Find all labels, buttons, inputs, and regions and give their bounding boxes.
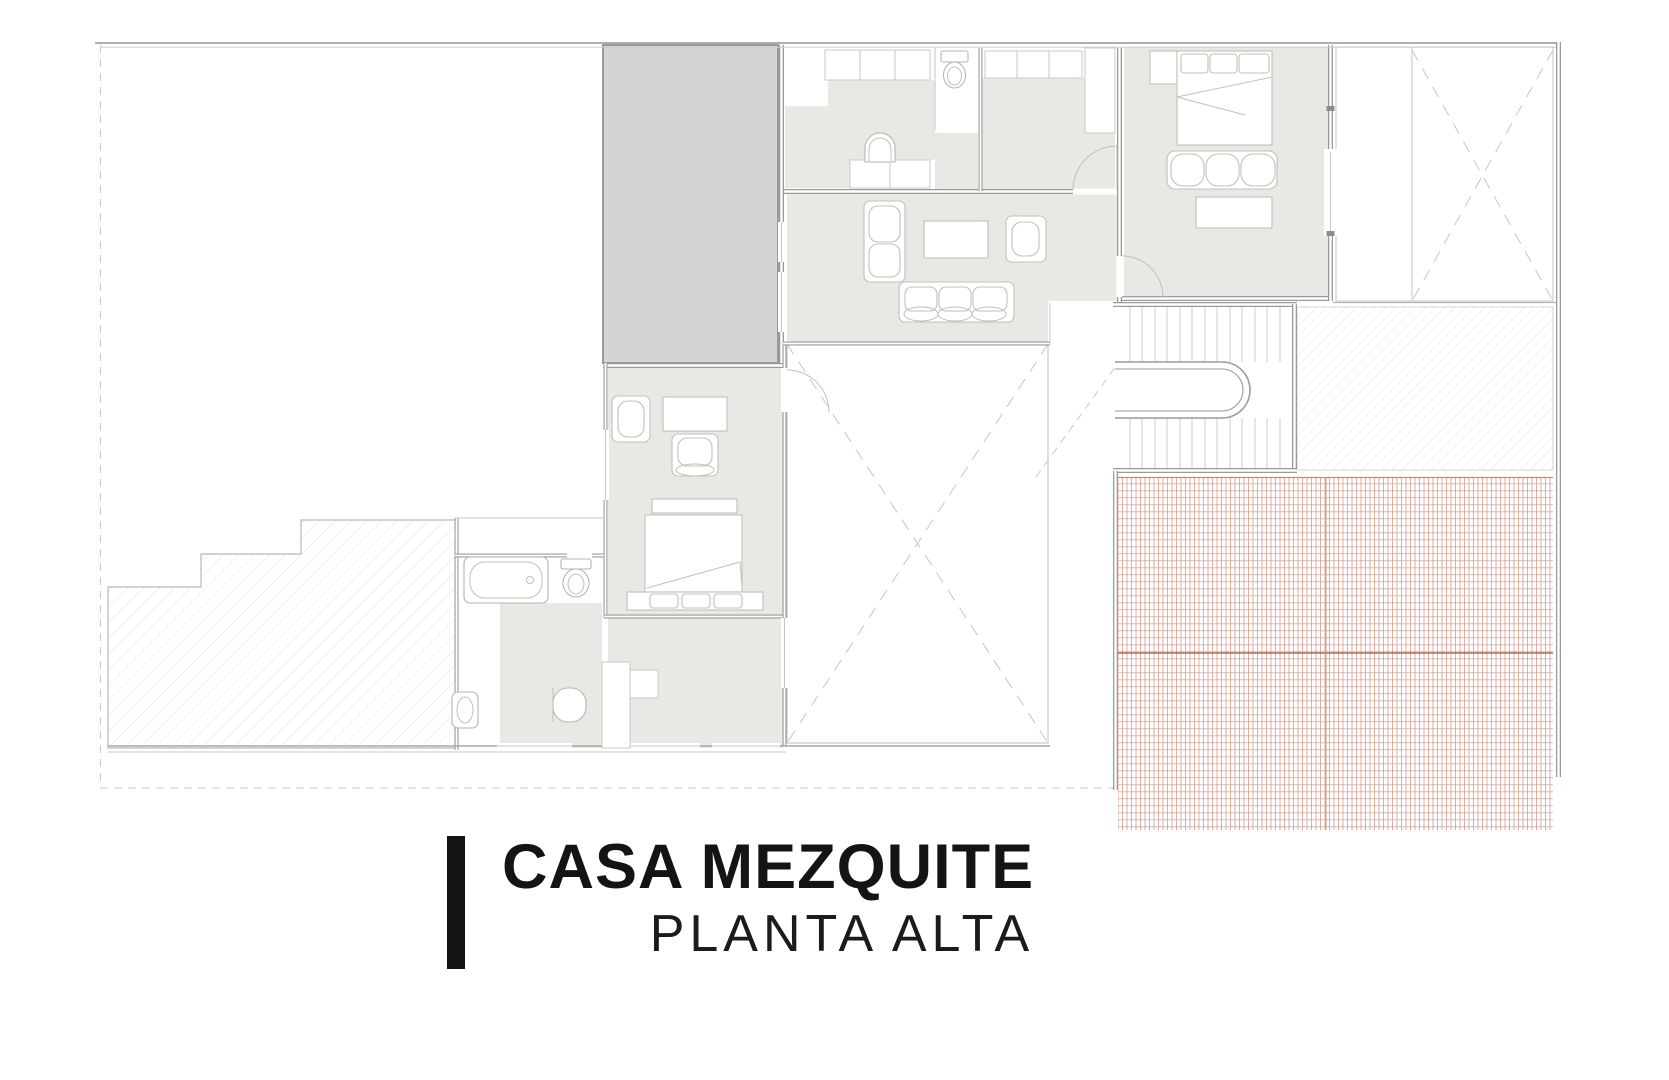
headboard <box>652 499 737 513</box>
vanity-counter <box>825 50 930 80</box>
stepped-roof-hatch <box>108 520 457 748</box>
armchair <box>1006 216 1046 262</box>
title-block: CASA MEZQUITE PLANTA ALTA <box>447 836 1034 969</box>
sofa <box>899 282 1014 322</box>
bed <box>1177 51 1272 145</box>
title-accent-bar <box>447 836 465 969</box>
plan-subtitle: PLANTA ALTA <box>502 907 1034 962</box>
desk <box>663 397 727 431</box>
central-skylight-terrace <box>787 344 1048 743</box>
dresser <box>630 670 658 698</box>
wardrobe <box>1085 48 1115 133</box>
loveseat <box>864 201 905 282</box>
wardrobe <box>985 51 1082 78</box>
armchair <box>612 396 650 442</box>
page: CASA MEZQUITE PLANTA ALTA <box>0 0 1669 1080</box>
coffee-table <box>924 221 988 258</box>
terrace-hatch-right <box>1297 307 1553 470</box>
tile-roof <box>1118 477 1553 830</box>
bathroom2-floor <box>500 603 602 748</box>
basin-arch-icon <box>865 133 895 162</box>
toilet-icon <box>561 559 591 597</box>
title-texts: CASA MEZQUITE PLANTA ALTA <box>502 836 1034 969</box>
armchair <box>672 434 718 476</box>
sofa <box>1167 151 1277 189</box>
double-height-void <box>603 45 778 363</box>
bathtub-icon <box>464 557 548 603</box>
plan-title: CASA MEZQUITE <box>502 836 1034 899</box>
rug <box>1196 197 1272 228</box>
sink-icon <box>452 692 478 728</box>
shower-icon <box>553 688 586 722</box>
nightstand <box>1150 51 1177 84</box>
top-right-skylight-terrace <box>1333 47 1556 303</box>
dresser <box>602 662 630 748</box>
staircase <box>1115 307 1280 468</box>
toilet-icon <box>941 51 968 88</box>
